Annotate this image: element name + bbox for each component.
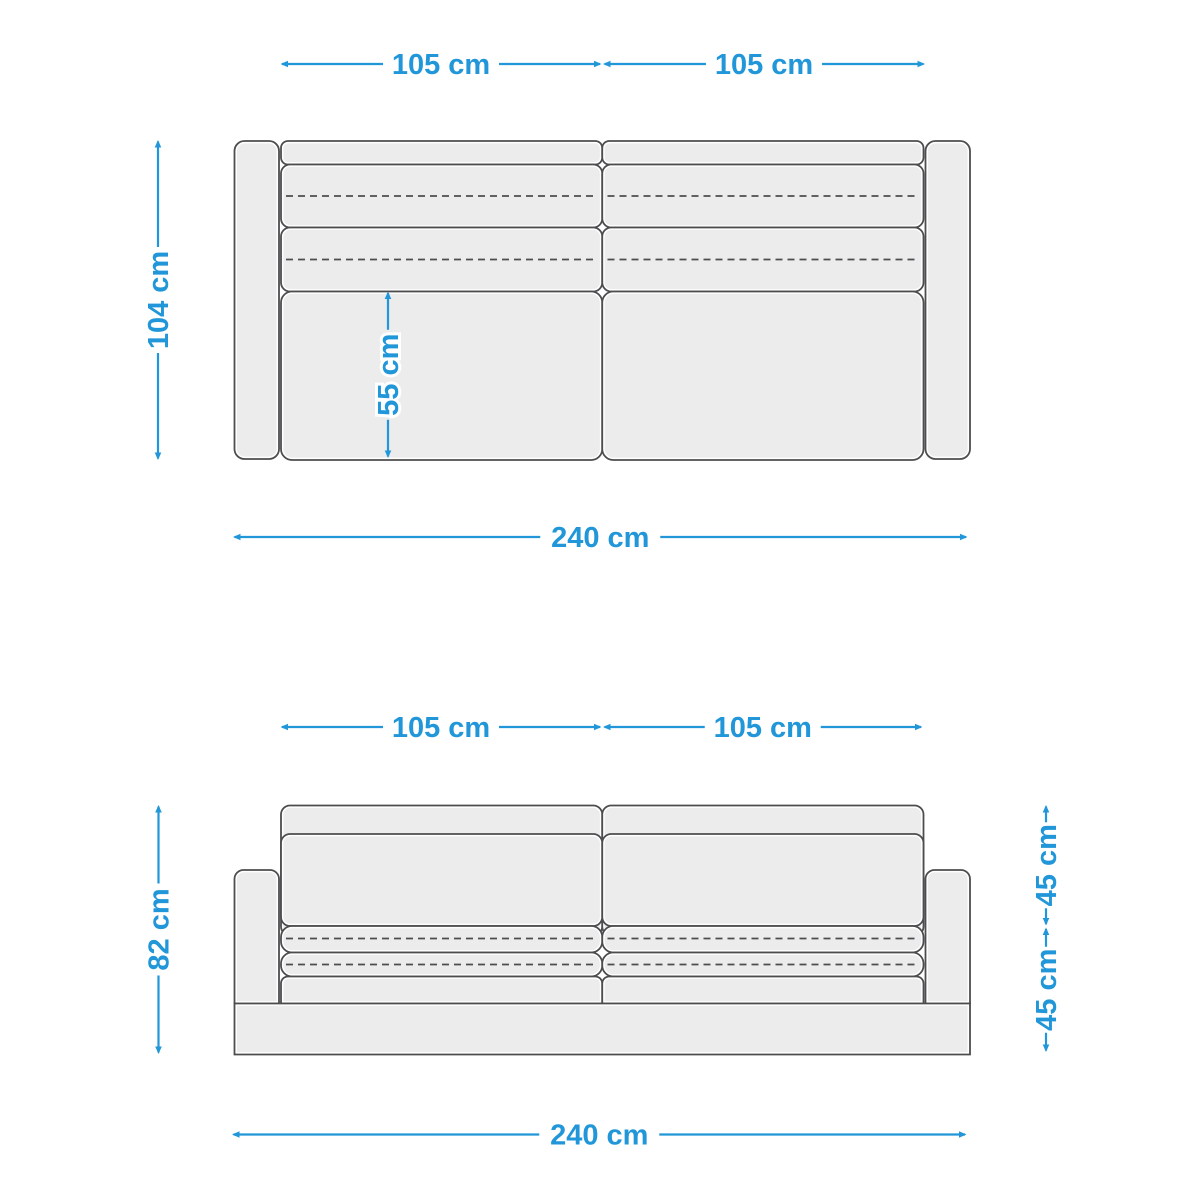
svg-text:82 cm: 82 cm bbox=[144, 888, 176, 970]
svg-text:105 cm: 105 cm bbox=[392, 49, 490, 81]
svg-text:105 cm: 105 cm bbox=[392, 712, 490, 744]
svg-text:45 cm: 45 cm bbox=[1031, 949, 1063, 1031]
svg-text:105 cm: 105 cm bbox=[715, 49, 813, 81]
svg-text:240 cm: 240 cm bbox=[550, 1120, 648, 1152]
svg-text:105 cm: 105 cm bbox=[714, 712, 812, 744]
svg-text:240 cm: 240 cm bbox=[551, 522, 649, 554]
svg-text:104 cm: 104 cm bbox=[143, 251, 175, 349]
svg-text:55 cm: 55 cm bbox=[373, 334, 405, 416]
svg-text:45 cm: 45 cm bbox=[1031, 824, 1063, 906]
